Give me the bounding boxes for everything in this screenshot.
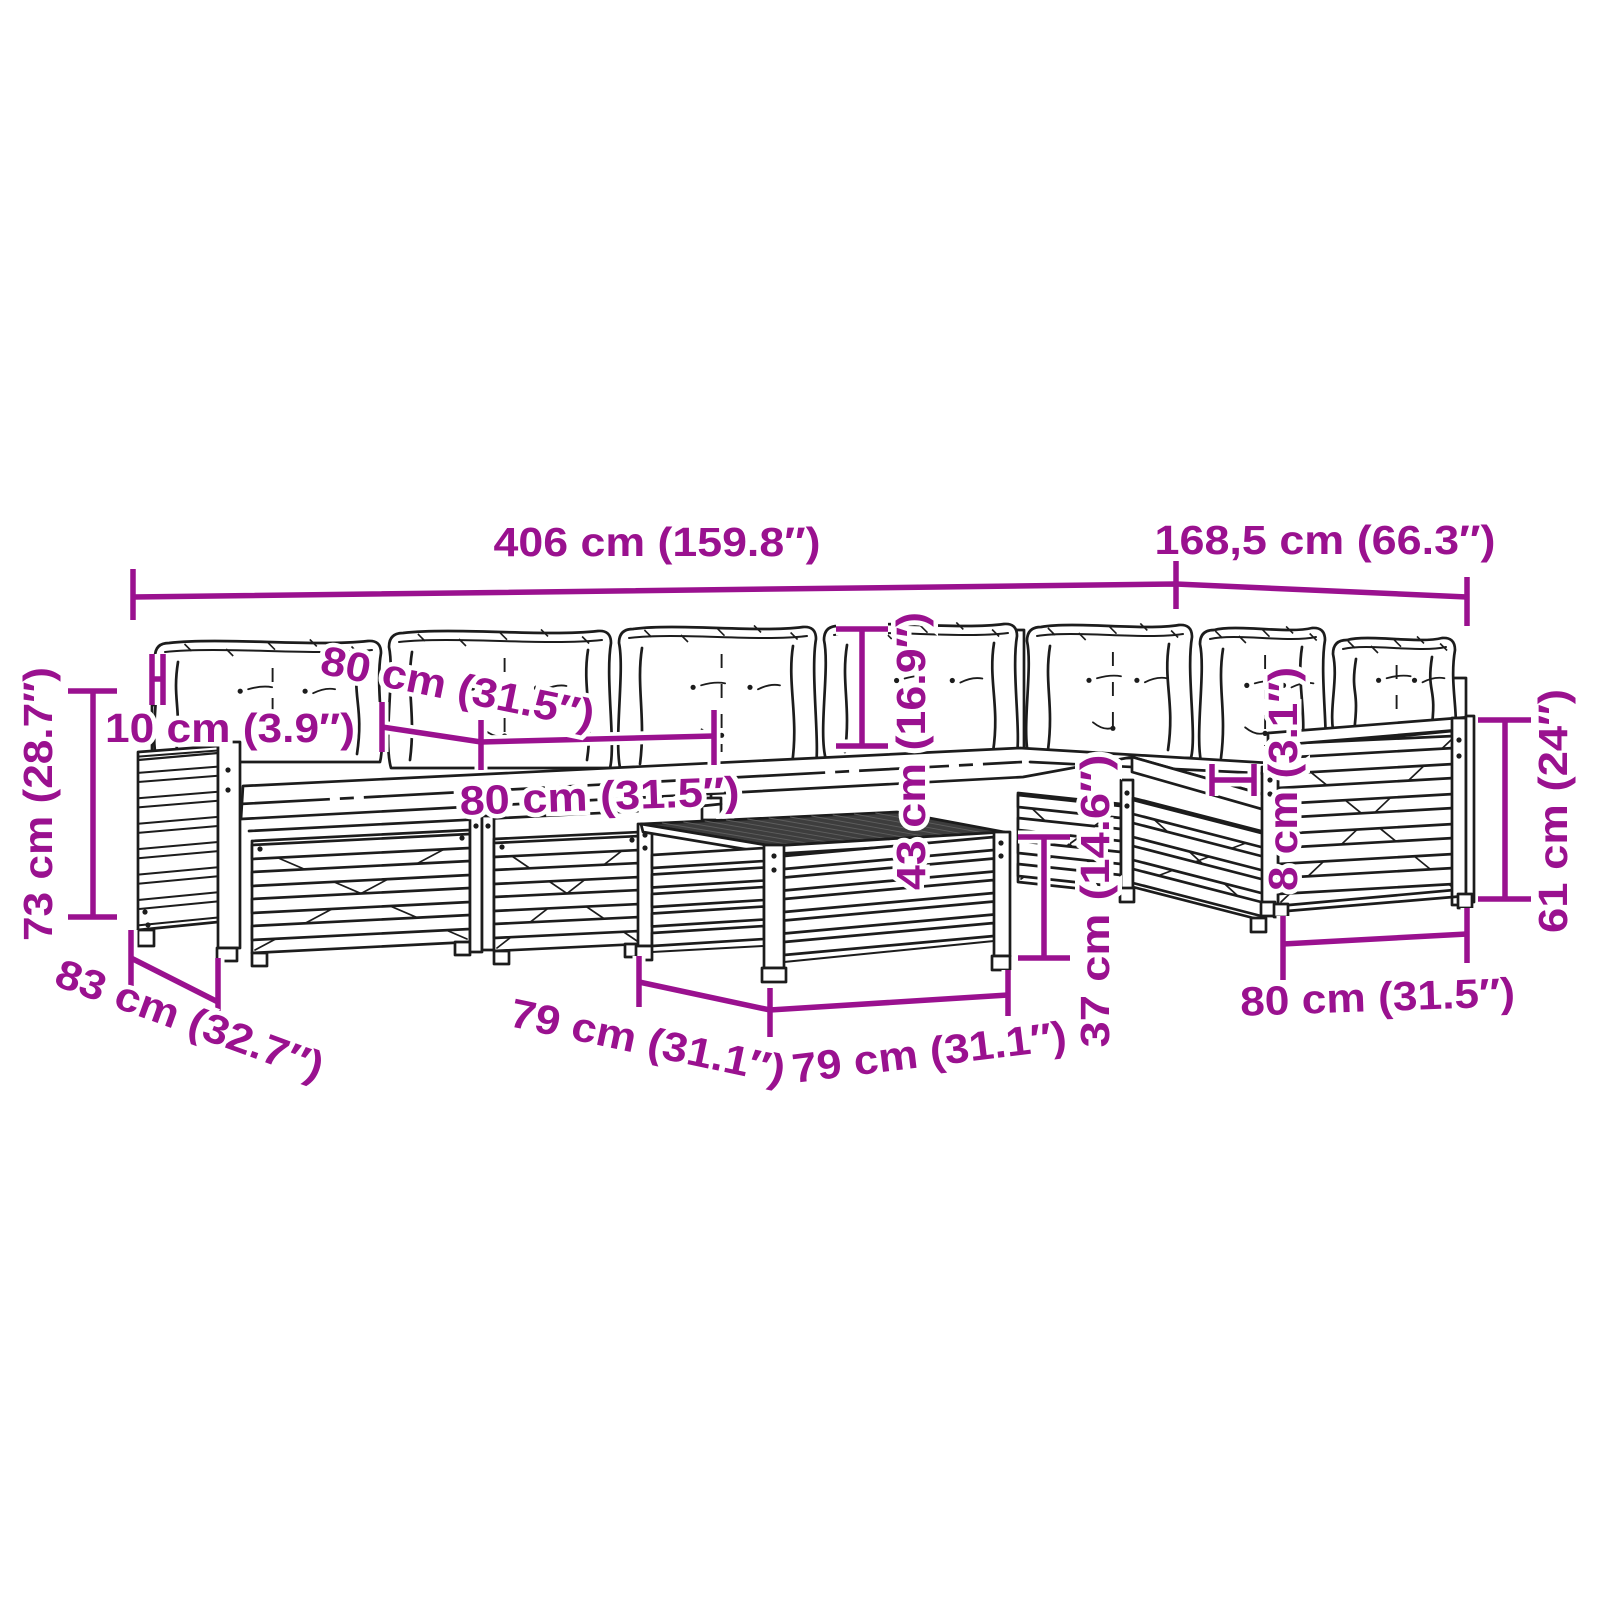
svg-text:10 cm (3.9″): 10 cm (3.9″) [105,705,355,751]
svg-text:43 cm (16.9″): 43 cm (16.9″) [888,612,934,890]
svg-text:80 cm (31.5″): 80 cm (31.5″) [1239,969,1515,1025]
svg-text:37 cm (14.6″): 37 cm (14.6″) [1072,755,1118,1048]
svg-text:8 cm (3.1″): 8 cm (3.1″) [1260,667,1306,891]
svg-text:61 cm (24″): 61 cm (24″) [1530,689,1576,933]
svg-text:80 cm (31.5″): 80 cm (31.5″) [459,768,740,824]
svg-text:168,5 cm (66.3″): 168,5 cm (66.3″) [1155,517,1496,563]
svg-text:73 cm (28.7″): 73 cm (28.7″) [15,667,61,941]
svg-text:406 cm (159.8″): 406 cm (159.8″) [494,519,821,565]
